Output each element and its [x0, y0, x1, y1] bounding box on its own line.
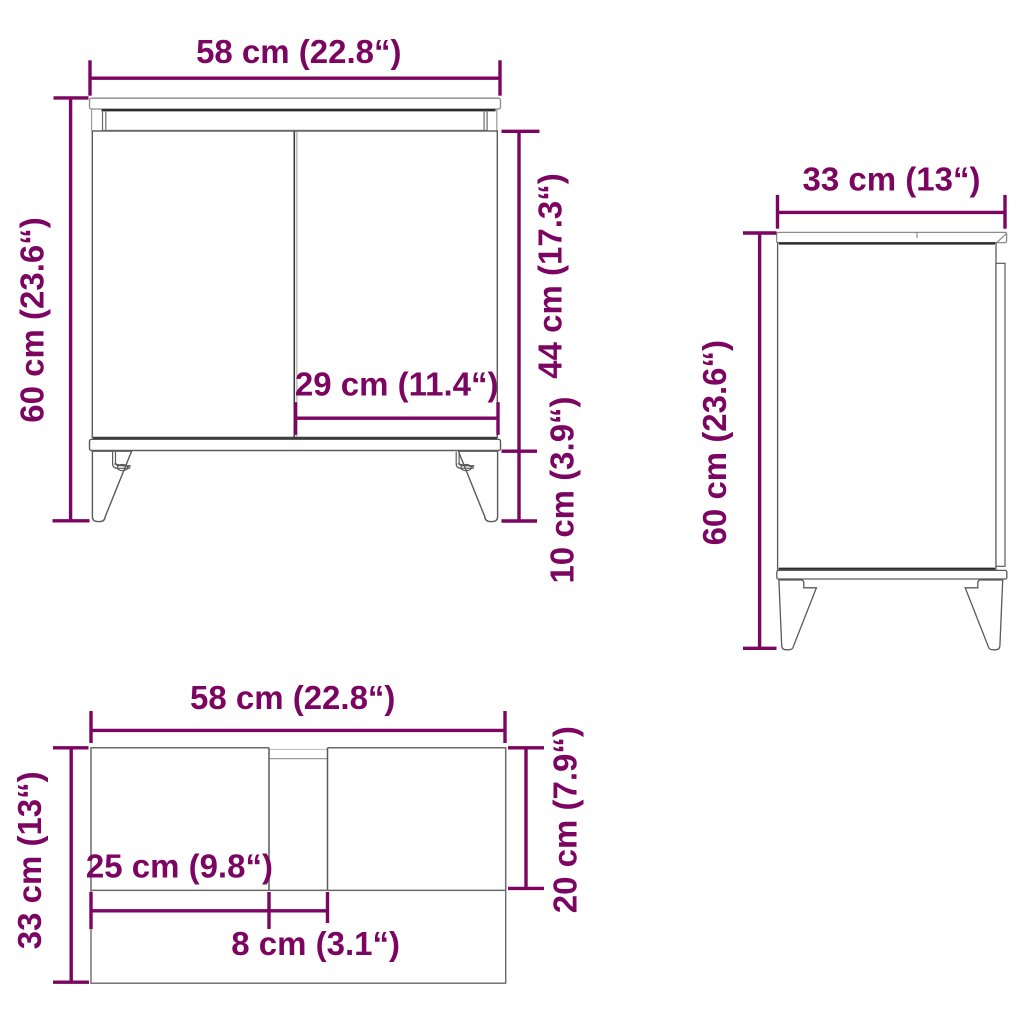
svg-text:60 cm (23.6“): 60 cm (23.6“) — [696, 340, 733, 545]
svg-text:29 cm (11.4“): 29 cm (11.4“) — [295, 366, 499, 403]
svg-text:20 cm (7.9“): 20 cm (7.9“) — [547, 726, 584, 913]
svg-text:25 cm (9.8“): 25 cm (9.8“) — [86, 848, 273, 885]
svg-text:8 cm (3.1“): 8 cm (3.1“) — [231, 925, 400, 962]
svg-text:58 cm (22.8“): 58 cm (22.8“) — [196, 33, 401, 70]
svg-text:60 cm (23.6“): 60 cm (23.6“) — [13, 217, 50, 422]
svg-text:58 cm (22.8“): 58 cm (22.8“) — [190, 679, 395, 716]
svg-text:33 cm (13“): 33 cm (13“) — [11, 771, 48, 949]
svg-text:10 cm (3.9“): 10 cm (3.9“) — [544, 396, 581, 583]
svg-text:33 cm (13“): 33 cm (13“) — [803, 161, 981, 198]
svg-text:44 cm (17.3“): 44 cm (17.3“) — [532, 173, 569, 378]
